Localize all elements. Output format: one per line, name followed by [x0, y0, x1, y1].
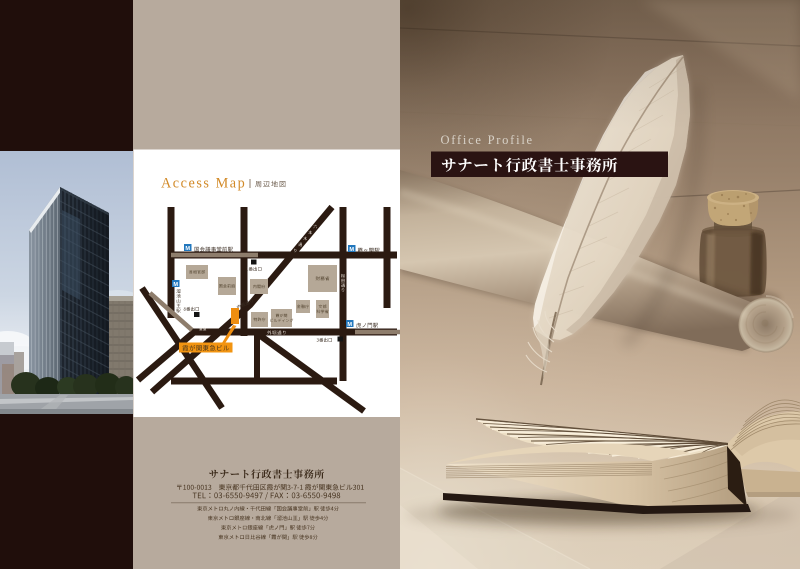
svg-text:M: M — [173, 282, 178, 288]
svg-text:M: M — [347, 322, 352, 328]
svg-text:Office Profile: Office Profile — [441, 133, 534, 147]
svg-text:M: M — [185, 246, 190, 252]
svg-text:Access Map: Access Map — [161, 176, 246, 192]
svg-text:M: M — [349, 247, 354, 253]
